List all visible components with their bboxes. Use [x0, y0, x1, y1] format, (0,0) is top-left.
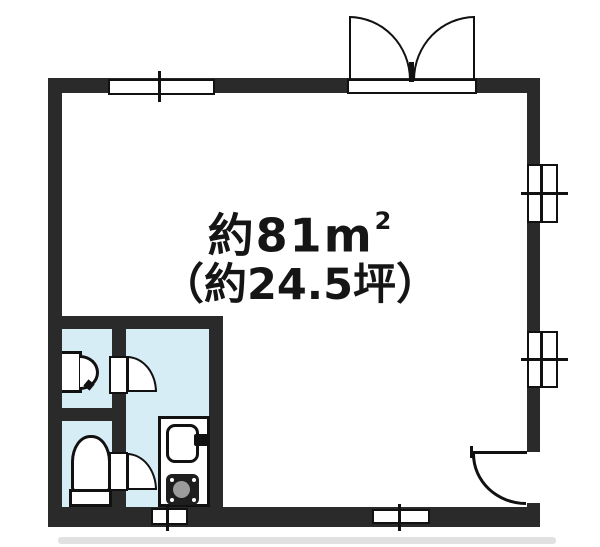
window-center-tick [158, 71, 161, 102]
area-unit-sup: 2 [375, 207, 394, 235]
wet-area-top-wall [62, 316, 223, 329]
window-center-tick [521, 358, 568, 361]
washbasin-counter [62, 351, 82, 393]
stove-corner-dot [192, 498, 196, 502]
area-label-m2: 約81m2 [150, 198, 450, 256]
sliding-window-icon [372, 509, 430, 524]
sliding-window-icon [151, 508, 188, 525]
double-swing-door-icon [413, 16, 475, 80]
scan-shadow-artifact [58, 537, 556, 544]
double-swing-door-icon [349, 16, 411, 80]
stove-corner-dot [170, 498, 174, 502]
stove-corner-dot [170, 478, 174, 482]
area-label-tsubo: （約24.5坪） [90, 256, 510, 314]
double-door-meeting-tick [409, 62, 414, 82]
toilet-icon [71, 435, 111, 493]
area-unit: m [324, 208, 374, 262]
door-opening [526, 452, 540, 503]
window-center-tick [166, 504, 169, 531]
window-center-tick [398, 504, 401, 531]
washroom-toilet-divider-wall [62, 408, 112, 421]
stove-corner-dot [192, 478, 196, 482]
area-value: 約81 [208, 208, 324, 262]
sliding-window-icon [108, 79, 215, 95]
window-center-tick [521, 192, 568, 195]
washroom-door-leaf [109, 356, 128, 394]
faucet-icon [194, 434, 209, 446]
floor-plan: 約81m2 （約24.5坪） [0, 0, 600, 547]
toilet-door-leaf [109, 452, 128, 491]
toilet-tank [69, 489, 112, 507]
stove-burner-icon [173, 481, 190, 498]
wet-area-right-wall [209, 316, 223, 507]
